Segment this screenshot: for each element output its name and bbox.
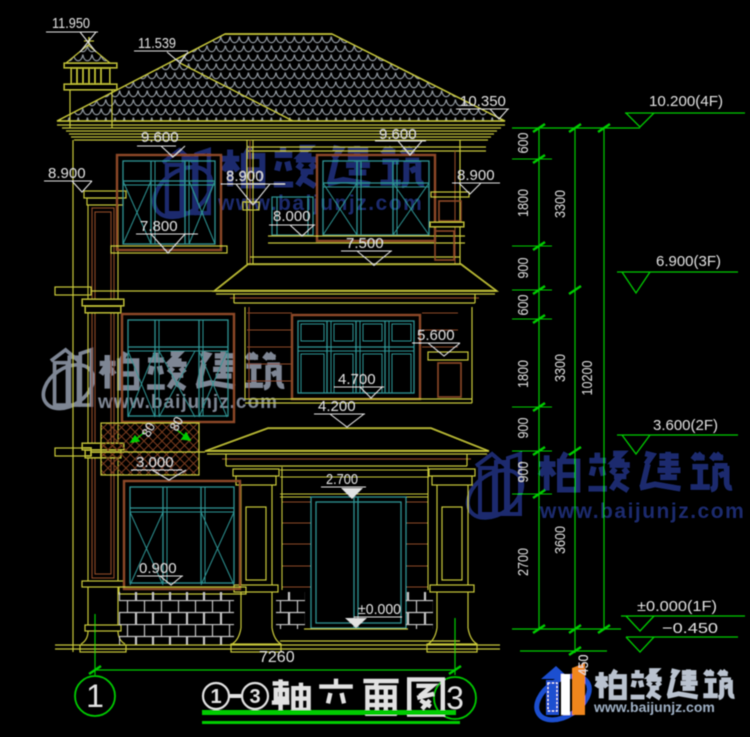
svg-text:2.700: 2.700	[326, 471, 358, 488]
svg-text:8.900: 8.900	[457, 167, 495, 184]
svg-text:6.900(3F): 6.900(3F)	[656, 253, 721, 270]
svg-text:1: 1	[86, 678, 104, 714]
svg-text:10200: 10200	[579, 361, 596, 396]
svg-text:3.000: 3.000	[136, 454, 174, 471]
svg-text:10.350: 10.350	[460, 93, 506, 110]
svg-text:10.200(4F): 10.200(4F)	[649, 93, 723, 110]
svg-text:7260: 7260	[259, 649, 295, 666]
svg-text:11.539: 11.539	[138, 35, 176, 52]
svg-text:3600: 3600	[552, 526, 569, 554]
svg-text:4.700: 4.700	[338, 371, 376, 388]
svg-text:2700: 2700	[515, 548, 532, 576]
svg-text:0.900: 0.900	[139, 560, 177, 577]
svg-text:www.baijunjz.com: www.baijunjz.com	[217, 192, 423, 215]
svg-text:www.baijunjz.com: www.baijunjz.com	[593, 699, 715, 715]
svg-text:3300: 3300	[552, 190, 569, 218]
svg-text:900: 900	[515, 258, 532, 279]
svg-text:8.000: 8.000	[273, 208, 311, 225]
svg-text:450: 450	[575, 654, 591, 675]
svg-text:5.600: 5.600	[417, 327, 455, 344]
svg-text:11.950: 11.950	[52, 15, 90, 32]
svg-text:3.600(2F): 3.600(2F)	[653, 417, 718, 434]
svg-text:www.baijunjz.com: www.baijunjz.com	[539, 500, 745, 523]
svg-text:900: 900	[515, 462, 532, 483]
svg-text:3: 3	[249, 686, 260, 708]
svg-text:4.200: 4.200	[318, 398, 356, 415]
svg-text:3300: 3300	[552, 354, 569, 382]
svg-text:1: 1	[210, 686, 221, 708]
svg-text:±0.000: ±0.000	[358, 601, 401, 618]
svg-text:900: 900	[515, 418, 532, 439]
svg-text:8.900: 8.900	[226, 168, 264, 185]
svg-text:1800: 1800	[515, 189, 532, 217]
svg-text:±0.000(1F): ±0.000(1F)	[637, 598, 717, 615]
svg-text:7.800: 7.800	[140, 218, 178, 235]
svg-text:600: 600	[515, 295, 532, 316]
svg-text:600: 600	[515, 133, 532, 154]
svg-text:1800: 1800	[515, 360, 532, 388]
svg-text:7.500: 7.500	[346, 235, 384, 252]
svg-text:8.900: 8.900	[48, 165, 86, 182]
svg-text:9.600: 9.600	[141, 129, 179, 146]
svg-text:−0.450: −0.450	[662, 620, 718, 637]
